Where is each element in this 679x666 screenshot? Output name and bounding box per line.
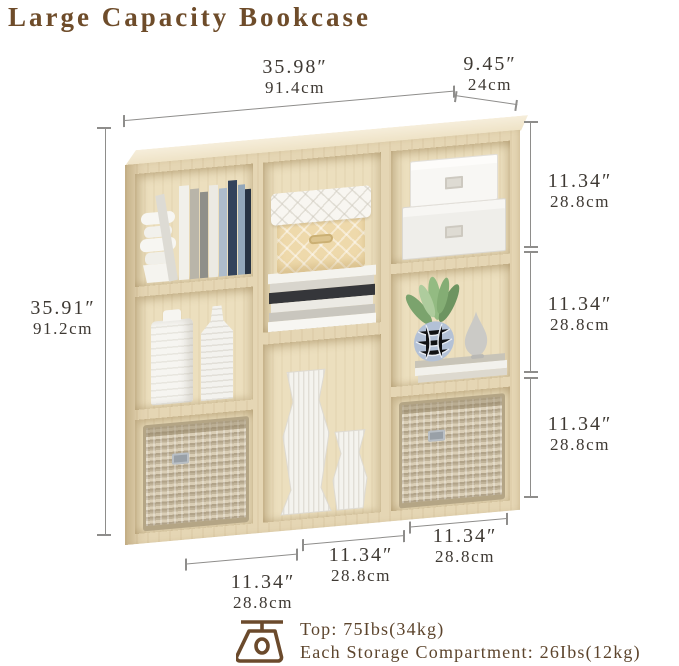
scale-icon bbox=[236, 618, 288, 664]
tick bbox=[97, 534, 111, 536]
capacity-each: Each Storage Compartment: 26Ibs(12kg) bbox=[300, 641, 641, 664]
basket-handle bbox=[309, 233, 333, 244]
cell-right-middle bbox=[391, 264, 510, 388]
cell-right-top bbox=[391, 141, 510, 265]
bottom-section-label-2: 11.34″ 28.8cm bbox=[311, 545, 411, 585]
pleated-vases bbox=[263, 334, 381, 523]
right-dimension-line-1 bbox=[530, 122, 531, 247]
standing-books bbox=[135, 164, 253, 288]
right-section-label-2: 11.34″ 28.8cm bbox=[538, 294, 622, 334]
tick bbox=[524, 377, 538, 379]
tick bbox=[524, 496, 538, 498]
horizontal-book-stack bbox=[268, 265, 376, 333]
cell-left-bottom bbox=[135, 410, 253, 535]
cell-right-bottom bbox=[391, 387, 510, 512]
tick bbox=[97, 127, 111, 129]
white-vase-bottle bbox=[201, 304, 233, 401]
right-dimension-line-3 bbox=[530, 378, 531, 497]
white-vase-square bbox=[151, 318, 193, 406]
storage-box-bottom bbox=[402, 198, 506, 260]
label-plate-icon bbox=[445, 176, 463, 190]
bottom-dimension-line-1 bbox=[185, 554, 298, 565]
tick bbox=[524, 371, 538, 373]
right-section-label-3: 11.34″ 28.8cm bbox=[538, 414, 622, 454]
storage-box-top bbox=[410, 154, 498, 208]
cell-left-top bbox=[135, 164, 253, 288]
rattan-basket bbox=[399, 393, 505, 508]
label-plate-icon bbox=[445, 225, 463, 239]
depth-dimension-label: 9.45″ 24cm bbox=[440, 54, 540, 94]
tick bbox=[524, 251, 538, 253]
cell-left-middle bbox=[135, 287, 253, 411]
plant-and-vase bbox=[391, 264, 510, 388]
bookcase bbox=[125, 130, 520, 545]
right-section-label-1: 11.34″ 28.8cm bbox=[538, 171, 622, 211]
product-infographic: Large Capacity Bookcase bbox=[0, 0, 679, 666]
bottom-section-label-3: 11.34″ 28.8cm bbox=[415, 526, 515, 566]
cell-middle-top bbox=[263, 152, 381, 333]
rattan-basket bbox=[143, 416, 249, 531]
height-dimension-label: 35.91″ 91.2cm bbox=[18, 298, 108, 338]
right-dimension-line-2 bbox=[530, 252, 531, 372]
capacity-top: Top: 75Ibs(34kg) bbox=[300, 618, 641, 641]
capacity-info: Top: 75Ibs(34kg) Each Storage Compartmen… bbox=[236, 618, 641, 664]
tick bbox=[524, 121, 538, 123]
tick bbox=[524, 246, 538, 248]
width-dimension-label: 35.98″ 91.4cm bbox=[215, 57, 375, 97]
cell-middle-bottom bbox=[263, 334, 381, 523]
bottom-section-label-1: 11.34″ 28.8cm bbox=[213, 572, 313, 612]
capacity-text: Top: 75Ibs(34kg) Each Storage Compartmen… bbox=[300, 618, 641, 663]
